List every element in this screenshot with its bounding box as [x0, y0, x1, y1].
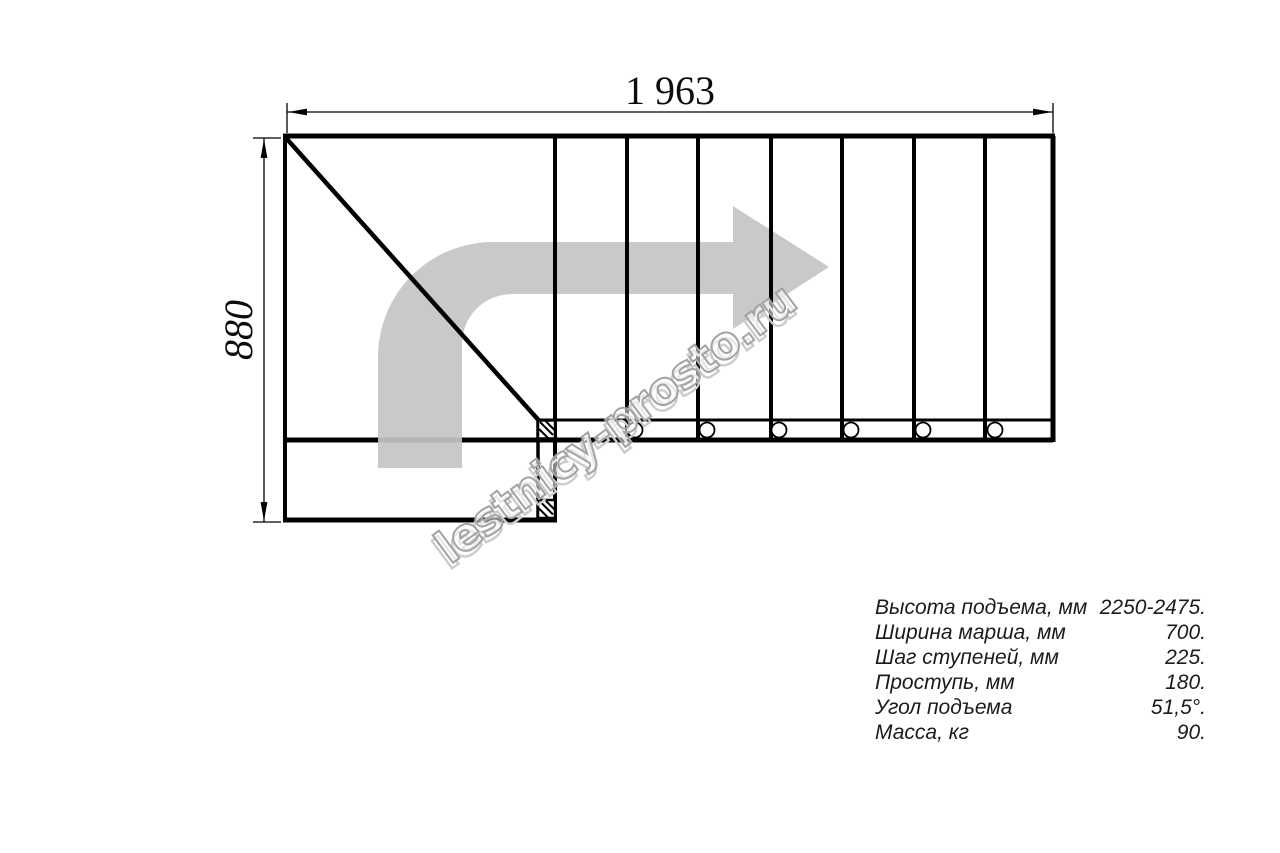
spec-row: Масса, кг 90. — [875, 720, 1206, 745]
spec-value: 90. — [1177, 720, 1206, 745]
spec-label: Угол подъема — [875, 695, 1012, 720]
dimension-height-value: 880 — [216, 300, 261, 360]
baluster-circle — [772, 423, 787, 438]
spec-table: Высота подъема, мм 2250-2475. Ширина мар… — [875, 595, 1206, 745]
dimension-arrow-down-icon — [261, 502, 268, 521]
spec-row: Ширина марша, мм 700. — [875, 620, 1206, 645]
spec-value: 180. — [1165, 670, 1206, 695]
dimension-width: 1 963 — [287, 68, 1053, 133]
baluster-row — [628, 423, 1003, 438]
spec-row: Шаг ступеней, мм 225. — [875, 645, 1206, 670]
spec-row: Высота подъема, мм 2250-2475. — [875, 595, 1206, 620]
spec-label: Шаг ступеней, мм — [875, 645, 1059, 670]
spec-row: Проступь, мм 180. — [875, 670, 1206, 695]
dimension-height: 880 — [216, 138, 281, 522]
watermark-text: lestnicy-prosto.ru — [425, 273, 806, 574]
baluster-circle — [916, 423, 931, 438]
spec-value: 2250-2475. — [1100, 595, 1206, 620]
spec-label: Проступь, мм — [875, 670, 1015, 695]
staircase-drawing-page: 1 963 880 lestnicy-prosto.ru lestnicy-pr… — [0, 0, 1280, 853]
dimension-arrow-right-icon — [1033, 109, 1052, 116]
spec-value: 700. — [1165, 620, 1206, 645]
baluster-circle — [844, 423, 859, 438]
dimension-arrow-up-icon — [261, 139, 268, 158]
spec-value: 51,5°. — [1151, 695, 1206, 720]
spec-row: Угол подъема 51,5°. — [875, 695, 1206, 720]
dimension-width-value: 1 963 — [625, 68, 715, 113]
spec-label: Ширина марша, мм — [875, 620, 1066, 645]
spec-label: Масса, кг — [875, 720, 969, 745]
spec-value: 225. — [1165, 645, 1206, 670]
baluster-circle — [988, 423, 1003, 438]
dimension-arrow-left-icon — [288, 109, 307, 116]
spec-label: Высота подъема, мм — [875, 595, 1087, 620]
watermark: lestnicy-prosto.ru lestnicy-prosto.ru — [422, 273, 808, 580]
baluster-circle — [700, 423, 715, 438]
